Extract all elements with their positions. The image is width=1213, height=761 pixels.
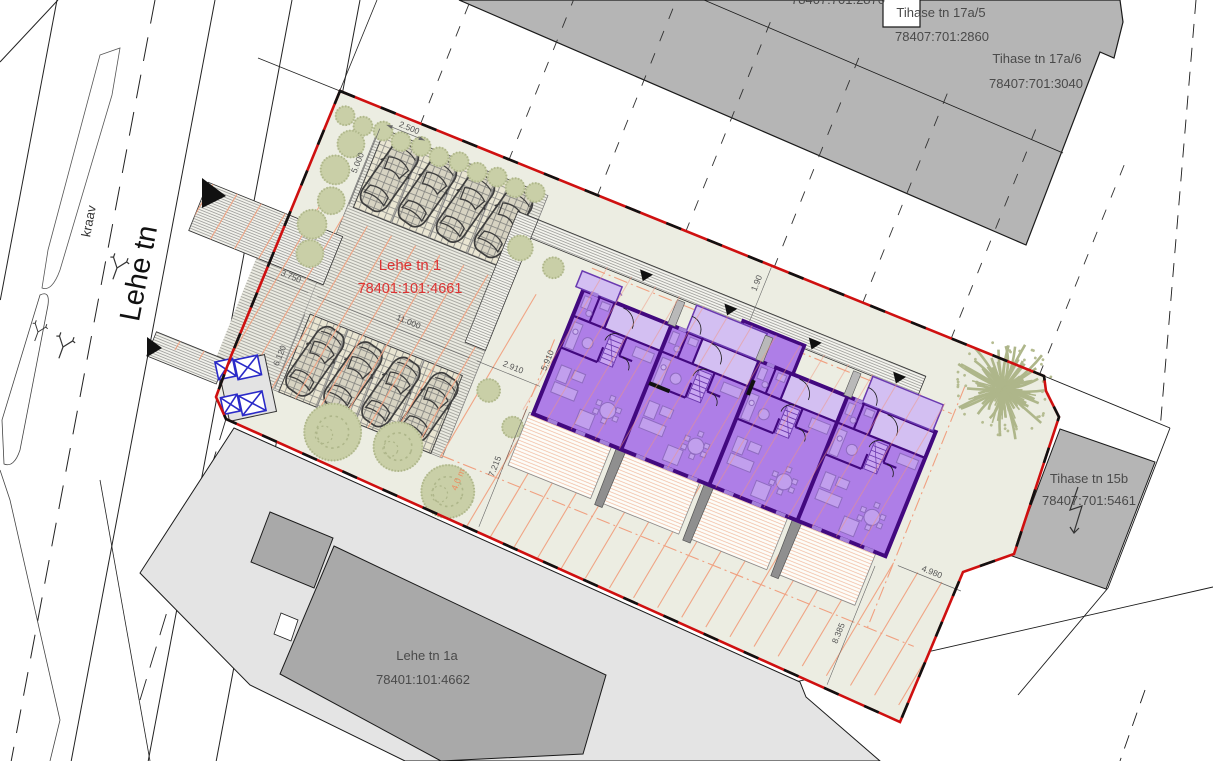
- svg-text:78407:701:2870: 78407:701:2870: [791, 0, 885, 7]
- svg-text:Tihase tn 15b: Tihase tn 15b: [1050, 471, 1128, 486]
- svg-text:78401:101:4662: 78401:101:4662: [376, 672, 470, 687]
- svg-text:78407:701:5461: 78407:701:5461: [1042, 493, 1136, 508]
- svg-text:78407:701:2860: 78407:701:2860: [895, 29, 989, 44]
- svg-text:78407:701:3040: 78407:701:3040: [989, 76, 1083, 91]
- svg-text:Tihase tn 17a/6: Tihase tn 17a/6: [992, 51, 1081, 66]
- svg-text:78401:101:4661: 78401:101:4661: [358, 281, 463, 297]
- svg-text:Tihase tn 17a/5: Tihase tn 17a/5: [896, 5, 985, 20]
- svg-text:Lehe tn 1a: Lehe tn 1a: [396, 648, 458, 663]
- svg-text:Lehe tn 1: Lehe tn 1: [379, 257, 442, 274]
